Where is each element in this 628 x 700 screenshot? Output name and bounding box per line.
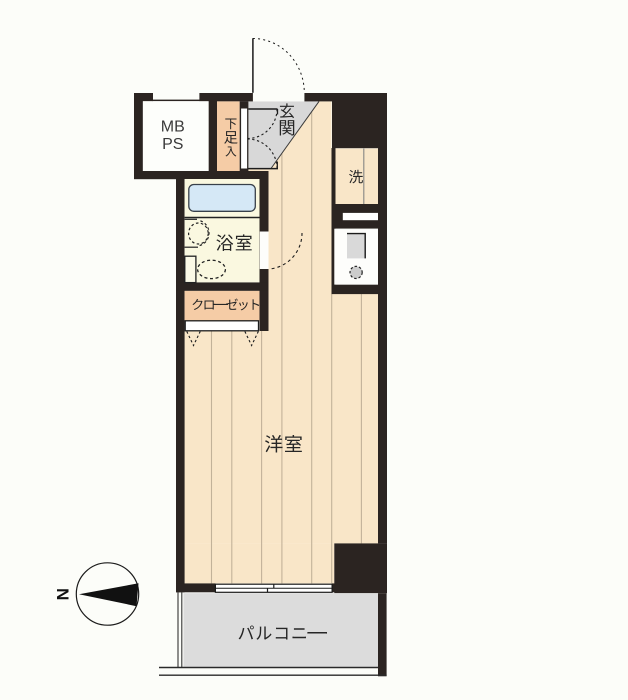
- svg-text:N: N: [53, 588, 72, 600]
- svg-text:PS: PS: [162, 136, 183, 153]
- svg-text:MB: MB: [161, 119, 185, 136]
